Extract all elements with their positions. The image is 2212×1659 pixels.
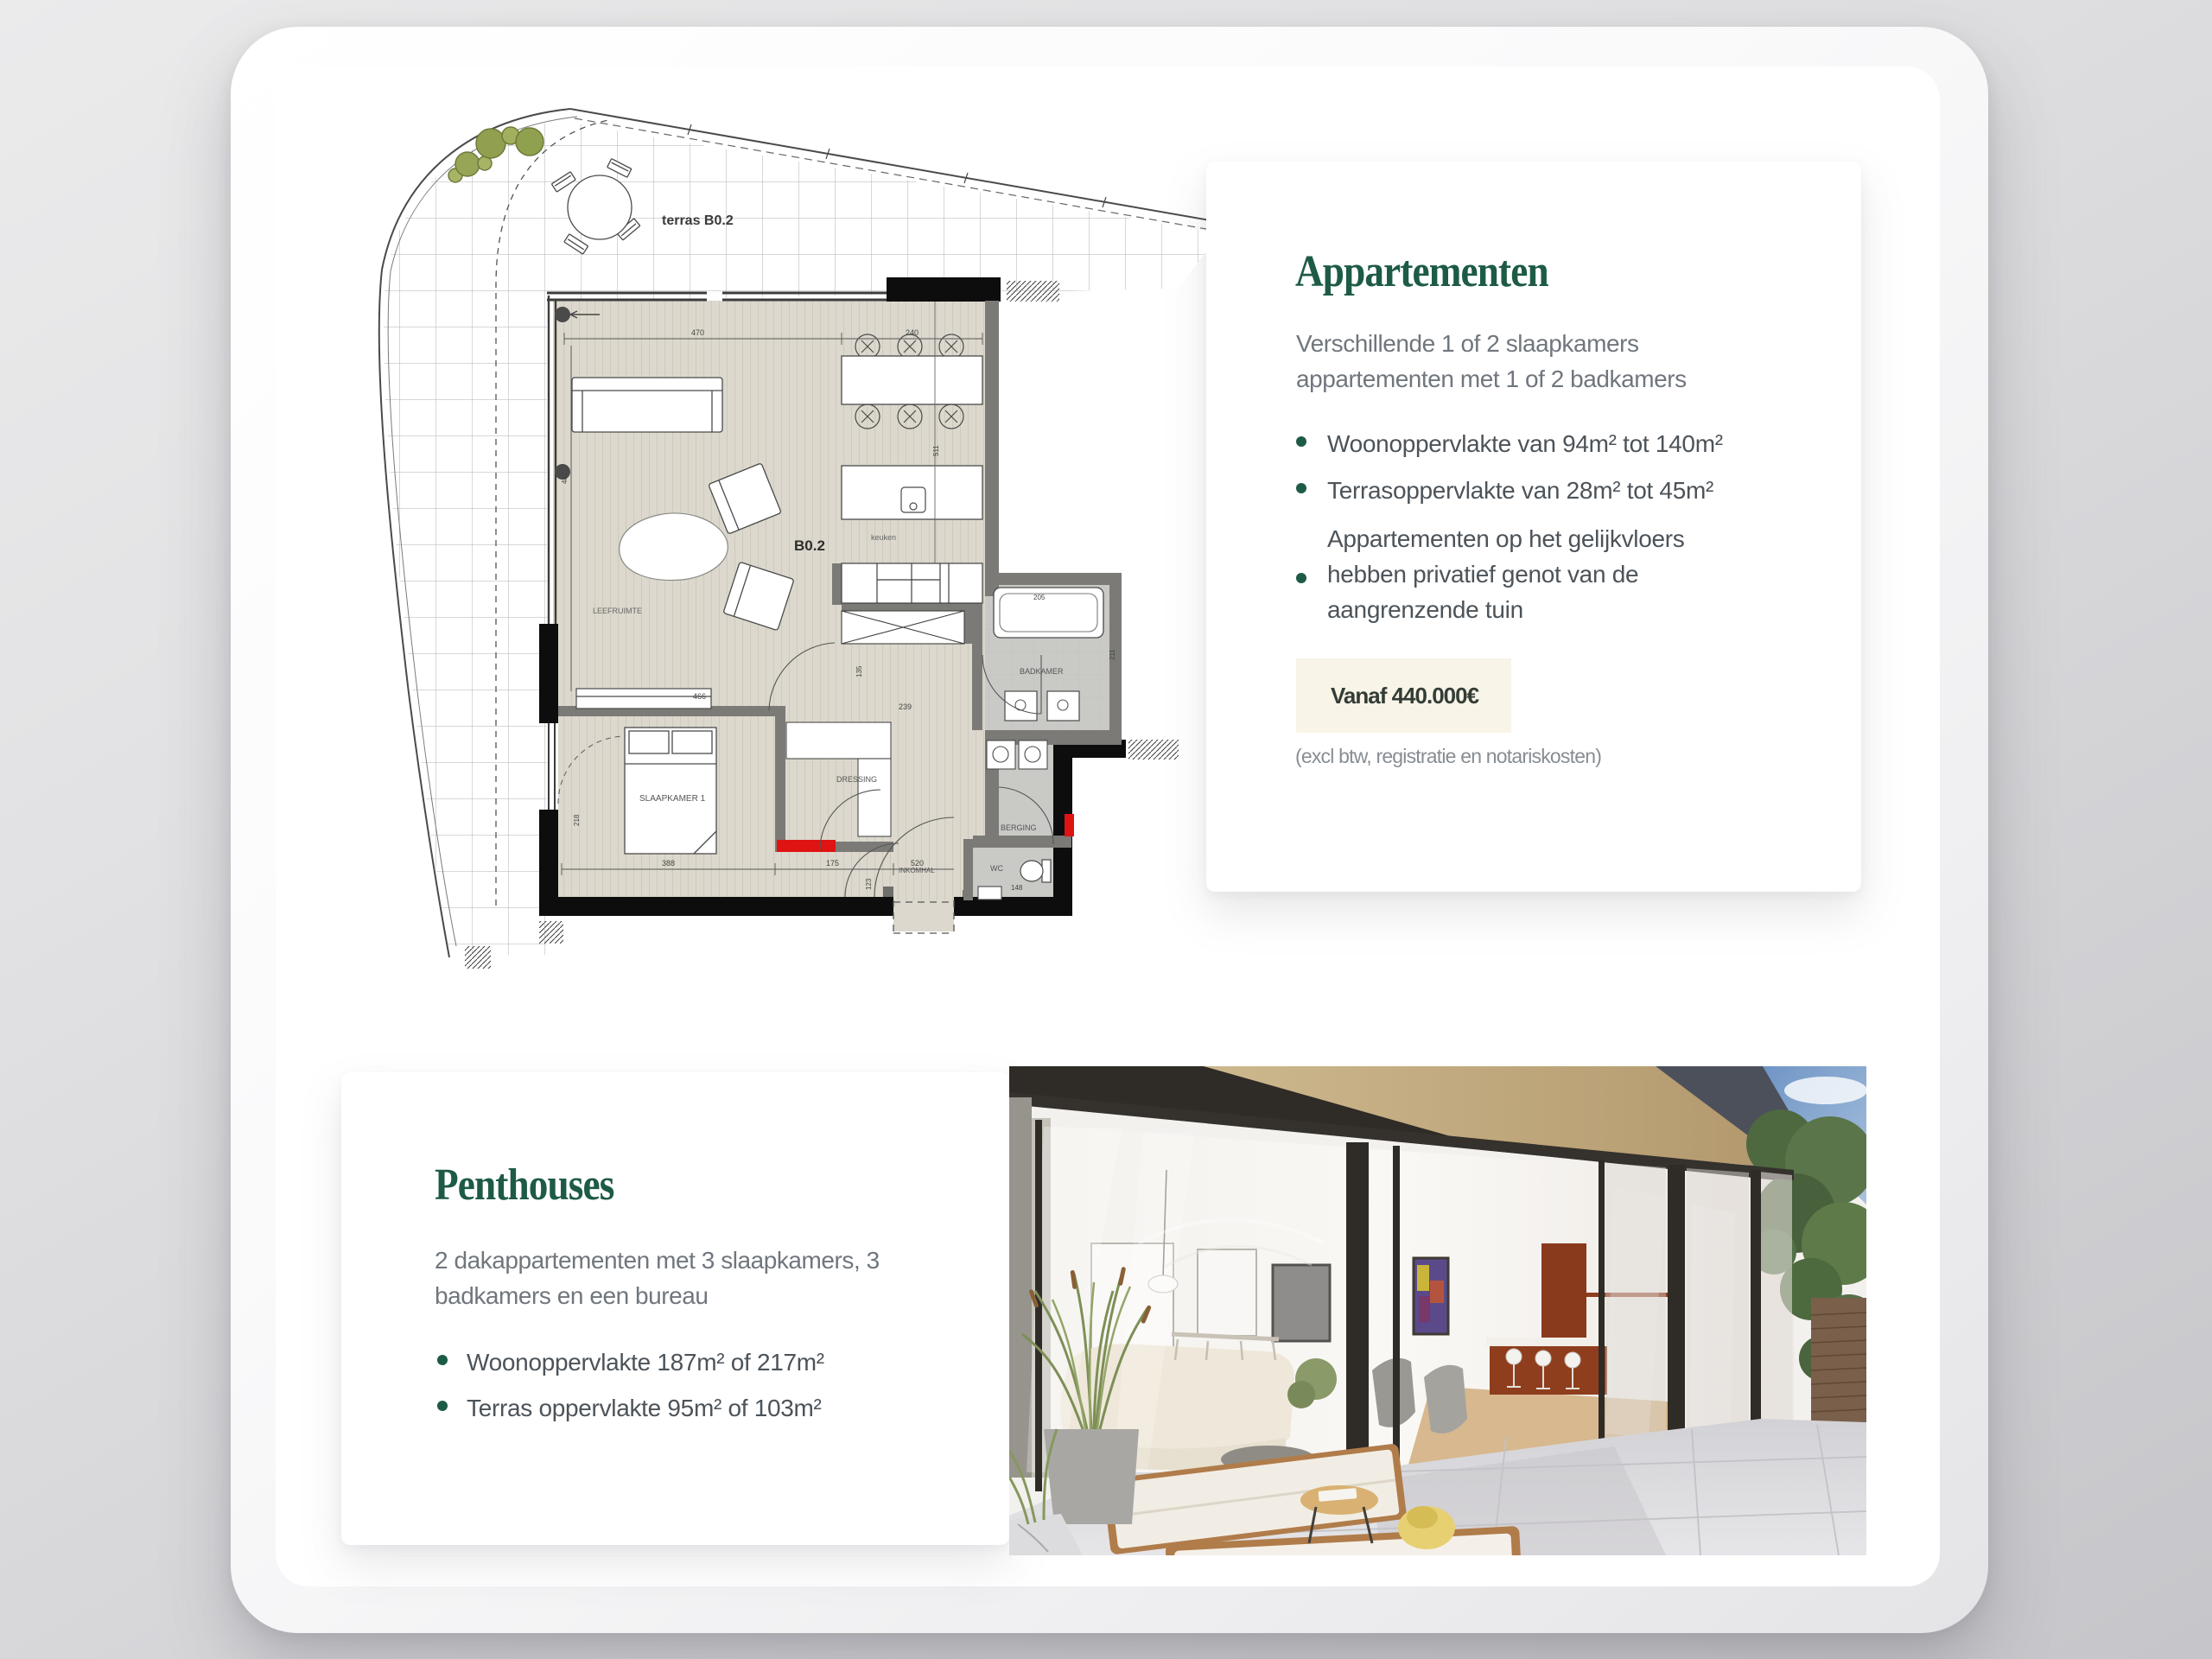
svg-text:BERGING: BERGING [1001,823,1037,832]
svg-text:388: 388 [662,859,675,868]
svg-text:SLAAPKAMER 1: SLAAPKAMER 1 [639,794,706,804]
svg-text:205: 205 [1033,594,1046,601]
svg-text:B0.2: B0.2 [794,537,825,554]
svg-text:466: 466 [693,692,706,701]
svg-text:135: 135 [855,665,863,677]
svg-text:123: 123 [865,878,873,890]
svg-text:BADKAMER: BADKAMER [1020,667,1064,676]
svg-text:148: 148 [1011,884,1023,892]
svg-text:INKOMHAL: INKOMHAL [899,867,935,874]
svg-text:511: 511 [932,445,940,456]
svg-text:WC: WC [990,864,1003,873]
svg-text:LEEFRUIMTE: LEEFRUIMTE [593,607,642,615]
svg-text:175: 175 [826,859,839,868]
svg-text:terras B0.2: terras B0.2 [662,213,734,228]
svg-text:483: 483 [561,472,569,484]
svg-text:239: 239 [899,702,912,711]
svg-text:DRESSING: DRESSING [836,775,877,784]
svg-text:218: 218 [573,814,581,826]
svg-text:keuken: keuken [871,533,896,542]
svg-text:470: 470 [691,328,704,337]
svg-text:240: 240 [906,328,918,337]
svg-text:211: 211 [1109,649,1116,660]
